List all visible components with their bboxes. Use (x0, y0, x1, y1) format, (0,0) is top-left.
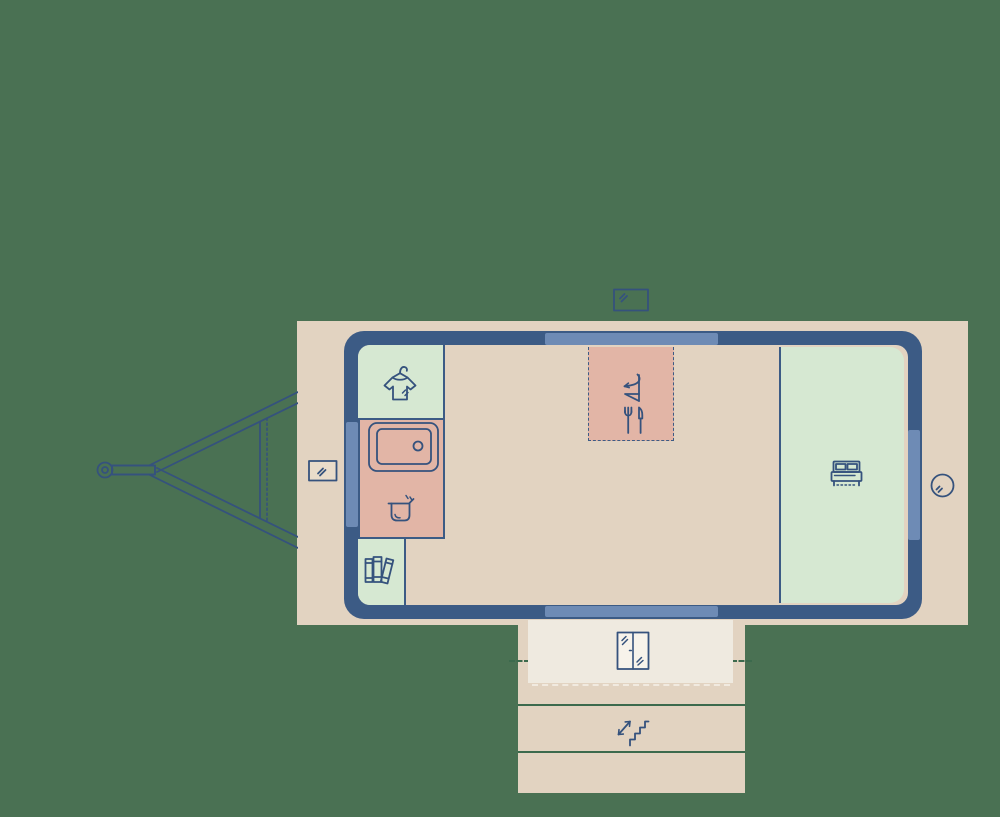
left-wall-window (346, 422, 358, 527)
drop-table-icon (615, 370, 645, 406)
cooking-pot-icon (383, 492, 419, 526)
tshirt-hanger-icon (380, 360, 420, 404)
window-symbol-icon (307, 459, 339, 485)
sink-icon (366, 420, 442, 474)
bottom-wall-window (545, 606, 718, 617)
stairs-icon (614, 712, 650, 748)
landing-edge-dashes (532, 684, 730, 686)
double-door-icon (615, 630, 651, 672)
double-bed-icon (829, 458, 865, 488)
right-wall-window (908, 430, 920, 540)
threshold-dash-left (509, 660, 530, 662)
deck-line-2 (518, 751, 745, 753)
top-wall-window (545, 333, 718, 345)
threshold-dash-right (731, 660, 752, 662)
tow-hitch (90, 380, 298, 560)
deck-line-1 (518, 704, 745, 706)
window-symbol-icon (612, 287, 650, 313)
porthole-icon (928, 471, 958, 501)
fork-knife-icon (620, 405, 646, 437)
books-icon (361, 552, 397, 586)
floorplan-illustration (0, 0, 1000, 817)
